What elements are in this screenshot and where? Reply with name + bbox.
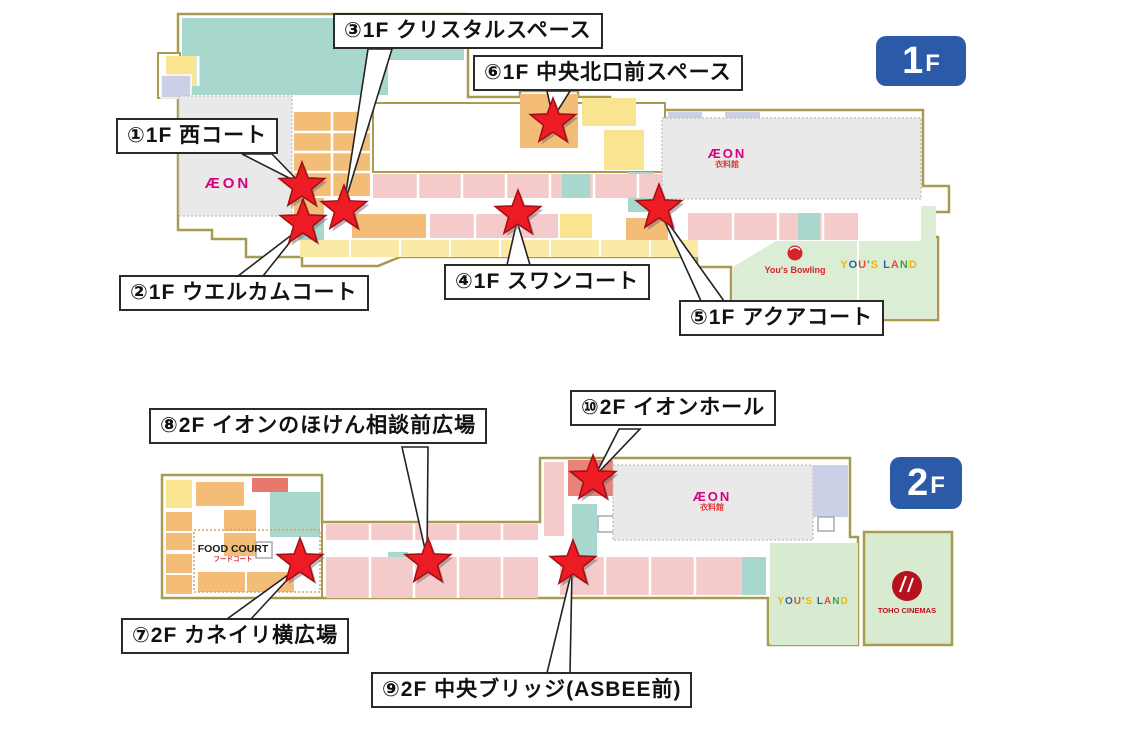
aeon-clothing-logo-main: ÆON xyxy=(708,147,747,160)
floor2-badge: 2 F xyxy=(890,457,962,509)
floor1-shops-south-row xyxy=(298,214,698,257)
aeon-clothing-logo-sub: 衣料館 xyxy=(693,503,732,513)
marker-label-9: ⑨2F 中央ブリッジ(ASBEE前) xyxy=(371,672,692,708)
food-court-logo-sub: フードコート xyxy=(198,556,269,564)
floor1-aeon-store-area xyxy=(179,96,292,216)
toho-cinemas-logo-icon xyxy=(892,571,922,601)
aeon-clothing-logo-1f: ÆON 衣料館 xyxy=(708,147,747,170)
floor2-badge-suffix: F xyxy=(930,474,945,498)
aeon-logo-1f: ÆON xyxy=(205,175,252,192)
food-court-logo: FOOD COURT フードコート xyxy=(198,544,269,563)
marker-label-4: ④1F スワンコート xyxy=(444,264,650,300)
yous-bowling-logo: You's Bowling xyxy=(765,265,826,275)
floor1-shops-right-row xyxy=(688,213,858,240)
floor2-badge-digit: 2 xyxy=(907,464,928,502)
yous-land-logo-2f: YOU'S LAND xyxy=(777,596,848,607)
yous-land-logo-1f: YOU'S LAND xyxy=(840,259,917,271)
floor2-yous-land-zone xyxy=(770,543,858,645)
marker-label-10: ⑩2F イオンホール xyxy=(570,390,776,426)
floor1-badge-suffix: F xyxy=(925,52,940,76)
floor1-badge-digit: 1 xyxy=(902,42,923,80)
aeon-clothing-logo-2f: ÆON 衣料館 xyxy=(693,490,732,513)
mall-floor-map-page: ÆON ÆON 衣料館 You's Bowling YOU'S LAND FOO… xyxy=(0,0,1130,732)
food-court-logo-main: FOOD COURT xyxy=(198,544,269,556)
marker-label-7: ⑦2F カネイリ横広場 xyxy=(121,618,349,654)
marker-label-6: ⑥1F 中央北口前スペース xyxy=(473,55,743,91)
marker-label-5: ⑤1F アクアコート xyxy=(679,300,884,336)
aeon-clothing-logo-main: ÆON xyxy=(693,490,732,503)
marker-label-3: ③1F クリスタルスペース xyxy=(333,13,603,49)
floor2-toho-cinemas-building xyxy=(864,532,952,645)
marker-label-1: ①1F 西コート xyxy=(116,118,278,154)
floor2-map xyxy=(162,458,952,645)
marker-label-8: ⑧2F イオンのほけん相談前広場 xyxy=(149,408,487,444)
marker-label-2: ②1F ウエルカムコート xyxy=(119,275,369,311)
aeon-clothing-logo-sub: 衣料館 xyxy=(708,160,747,170)
floor1-badge: 1 F xyxy=(876,36,966,86)
floor1-clothing-store-area xyxy=(662,112,921,199)
toho-cinemas-logo-text: TOHO CINEMAS xyxy=(878,606,936,615)
